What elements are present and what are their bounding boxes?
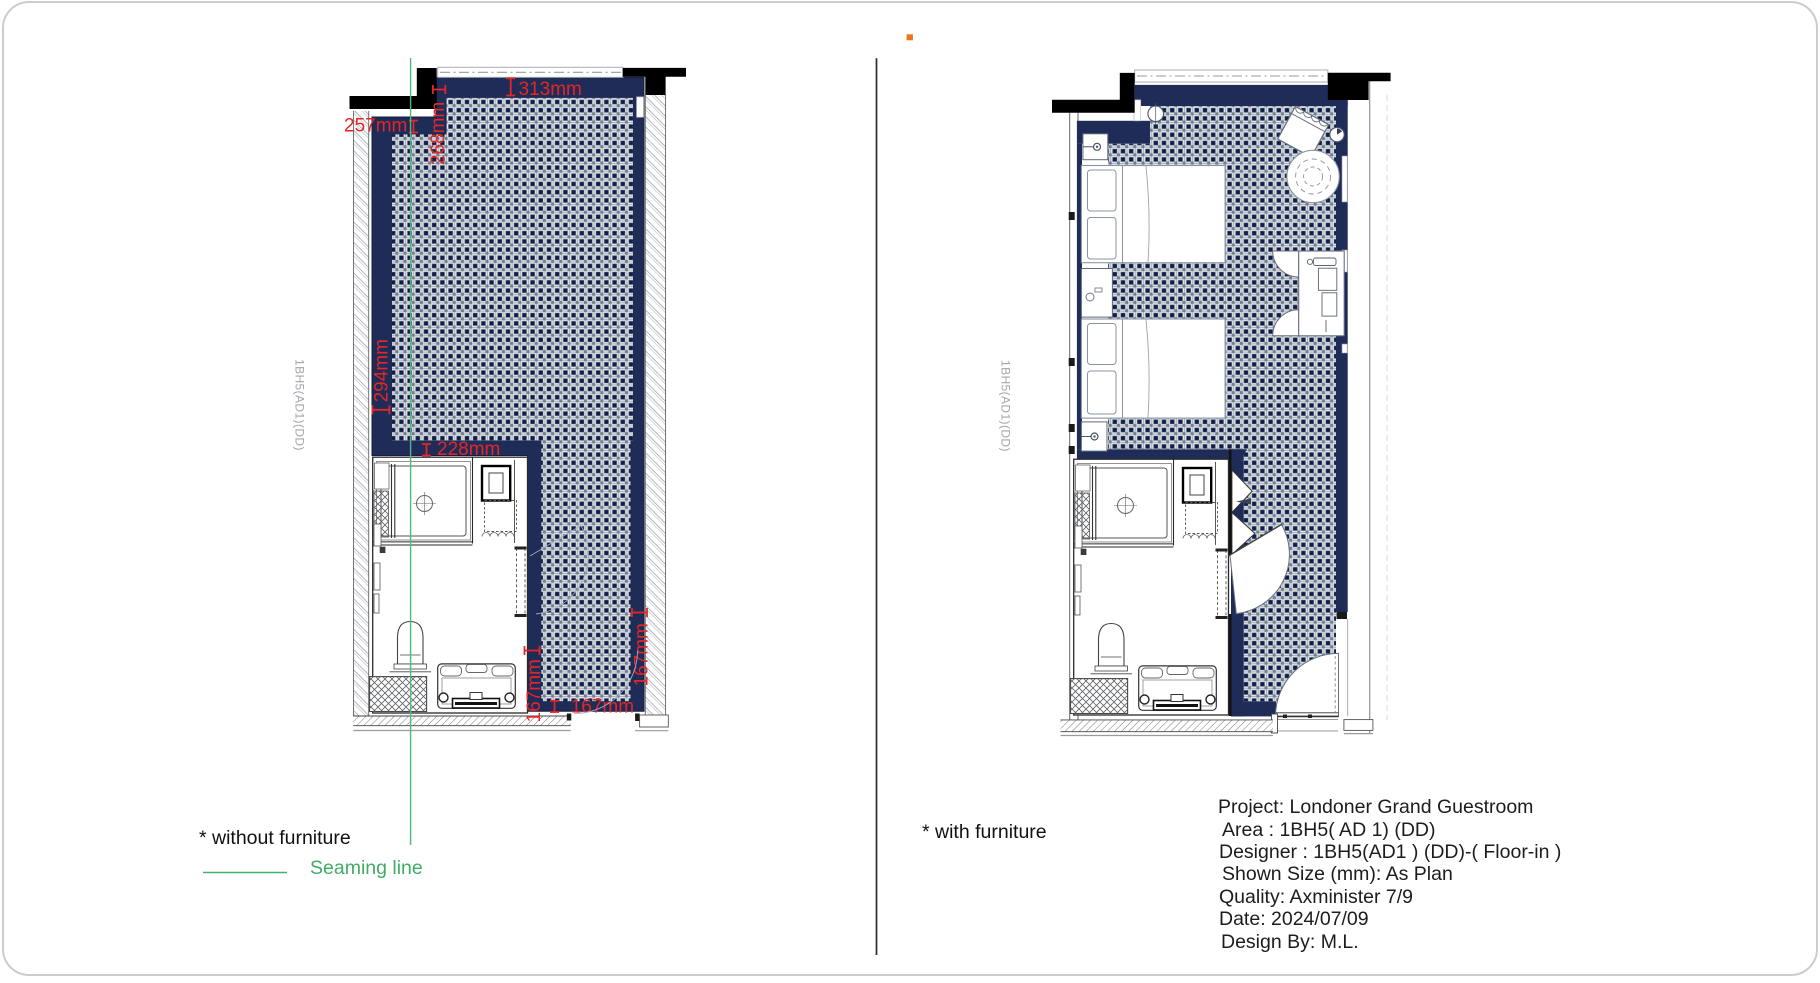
- svg-text:294mm: 294mm: [372, 339, 393, 402]
- svg-text:268mm: 268mm: [428, 102, 449, 165]
- svg-text:167mm: 167mm: [524, 659, 545, 722]
- svg-text:Area : 1BH5( AD 1) (DD): Area : 1BH5( AD 1) (DD): [1222, 819, 1435, 841]
- svg-text:228mm: 228mm: [437, 439, 500, 460]
- svg-text:257mm: 257mm: [344, 116, 407, 137]
- svg-text:167mm: 167mm: [632, 623, 653, 686]
- svg-text:Project: Londoner Grand Guestr: Project: Londoner Grand Guestroom: [1218, 796, 1533, 818]
- svg-text:Designer : 1BH5(AD1 ) (DD)-(: Designer : 1BH5(AD1 ) (DD)-( Floor-in ): [1219, 841, 1561, 863]
- svg-text:Seaming line: Seaming line: [310, 857, 423, 879]
- svg-text:* without furniture: * without furniture: [199, 827, 351, 849]
- svg-text:* with furniture: * with furniture: [922, 821, 1047, 843]
- svg-text:1BH5(AD1)(DD): 1BH5(AD1)(DD): [999, 360, 1013, 452]
- svg-text:Design By: M.L.: Design By: M.L.: [1221, 931, 1359, 953]
- svg-text:Quality: Axminister 7/9: Quality: Axminister 7/9: [1219, 886, 1413, 908]
- svg-text:Date: 2024/07/09: Date: 2024/07/09: [1219, 908, 1369, 930]
- svg-text:Shown Size (mm): As Plan: Shown Size (mm): As Plan: [1222, 863, 1453, 885]
- svg-text:1BH5(AD1)(DD): 1BH5(AD1)(DD): [293, 359, 307, 451]
- svg-text:313mm: 313mm: [519, 79, 582, 100]
